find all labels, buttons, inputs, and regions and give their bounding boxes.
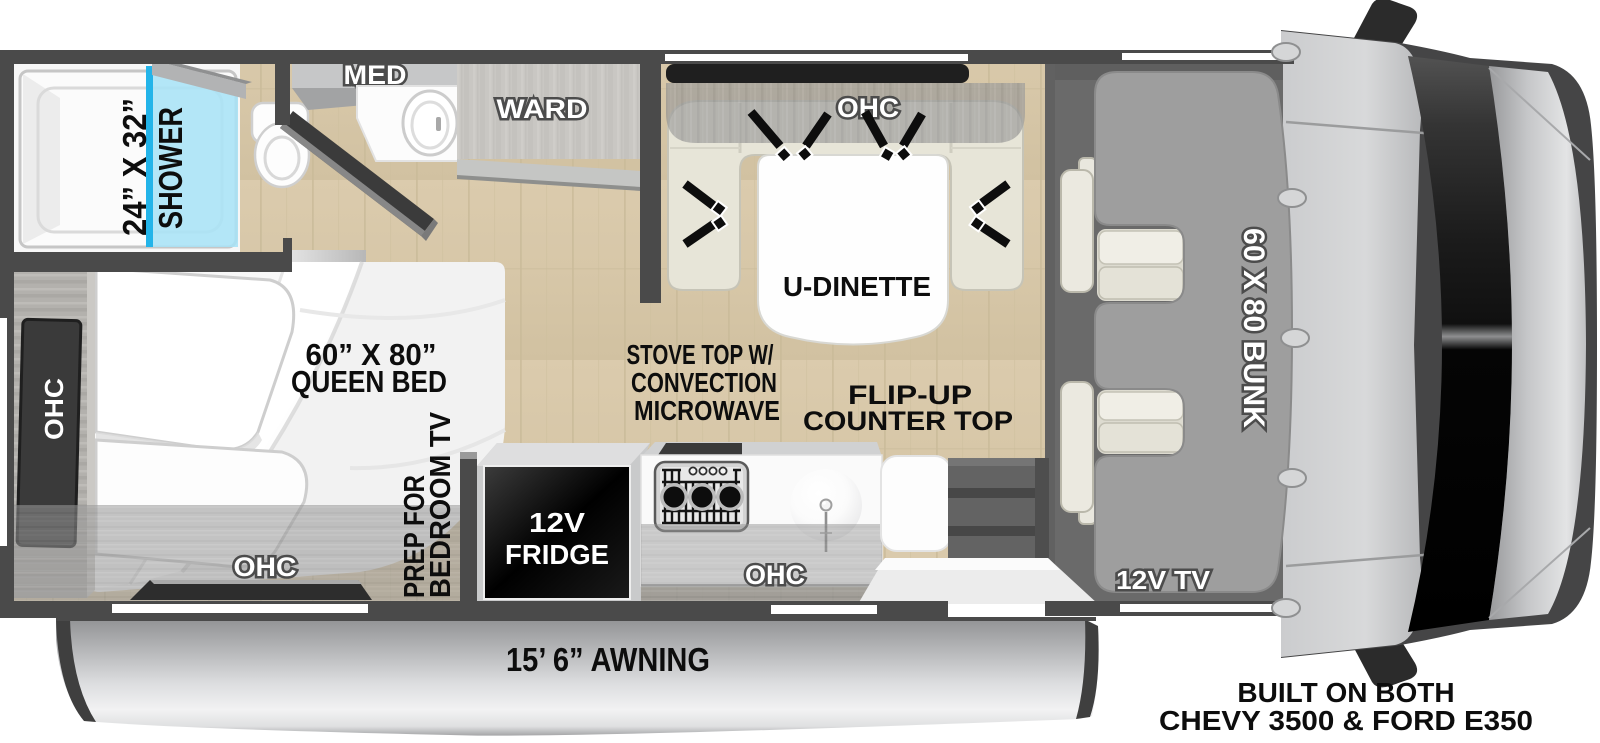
svg-text:CONVECTION: CONVECTION [631,367,777,398]
svg-text:U-DINETTE: U-DINETTE [783,271,931,302]
svg-text:24” X 32”: 24” X 32” [116,98,153,236]
svg-text:OHC: OHC [234,552,297,582]
svg-text:MICROWAVE: MICROWAVE [634,395,780,426]
svg-text:STOVE TOP W/: STOVE TOP W/ [627,339,774,370]
svg-text:BUILT ON BOTH: BUILT ON BOTH [1237,677,1454,708]
svg-text:CHEVY 3500 & FORD E350: CHEVY 3500 & FORD E350 [1159,705,1533,736]
svg-text:12V TV: 12V TV [1116,565,1211,595]
svg-text:60 X 80 BUNK: 60 X 80 BUNK [1237,228,1270,428]
svg-text:FRIDGE: FRIDGE [505,539,609,570]
svg-text:BEDROOM TV: BEDROOM TV [425,411,457,598]
svg-text:OHC: OHC [39,378,69,440]
svg-text:OHC: OHC [745,560,805,590]
svg-text:COUNTER TOP: COUNTER TOP [803,406,1013,436]
svg-text:QUEEN BED: QUEEN BED [291,364,447,399]
svg-text:WARD: WARD [497,94,588,124]
svg-text:SHOWER: SHOWER [152,107,189,229]
svg-text:15’ 6” AWNING: 15’ 6” AWNING [506,641,710,678]
svg-text:12V: 12V [529,507,585,538]
